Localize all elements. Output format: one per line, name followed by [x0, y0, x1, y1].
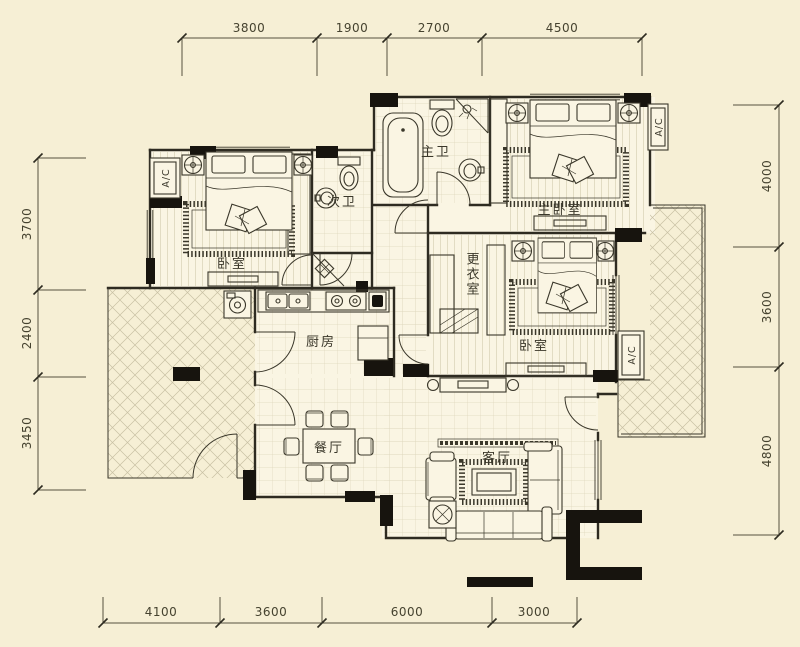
lamp-icon	[185, 157, 202, 174]
dim-left-2: 2400	[20, 317, 34, 350]
dim-left-1: 3700	[20, 208, 34, 241]
dimension-bottom: 4100 3600 6000 3000	[99, 597, 582, 628]
dim-right-3: 4800	[760, 435, 774, 468]
ac-label: A/C	[161, 168, 172, 187]
bathtub-icon	[383, 113, 423, 197]
dimension-top: 3800 1900 2700 4500	[178, 21, 647, 76]
room-label-bedroom1: 卧室	[217, 256, 247, 272]
dim-right-1: 4000	[760, 160, 774, 193]
sofa-3seat	[446, 507, 552, 541]
dim-left-3: 3450	[20, 417, 34, 450]
dresser-living	[428, 378, 519, 392]
dimension-right: 4000 3600 4800	[733, 101, 784, 540]
kitchen-appliance	[369, 292, 386, 310]
dim-bottom-4: 3000	[518, 605, 551, 619]
kitchen-sink-icon	[266, 292, 310, 310]
toilet-icon-master	[430, 100, 454, 136]
room-label-bedroom2: 卧室	[519, 338, 549, 354]
toilet-icon-bath2	[338, 157, 360, 190]
dimension-left: 3700 2400 3450	[20, 154, 86, 495]
room-label-dining: 餐厅	[314, 440, 344, 456]
lamp-icon	[295, 157, 312, 174]
room-label-dressing: 更衣室	[464, 252, 480, 297]
dim-bottom-1: 4100	[145, 605, 178, 619]
dim-top-3: 2700	[418, 21, 451, 35]
lamp-icon	[621, 105, 638, 122]
dim-right-2: 3600	[760, 291, 774, 324]
room-label-master-bedroom: 主卧室	[537, 202, 582, 218]
room-label-bath2: 次卫	[327, 194, 357, 210]
dim-top-4: 4500	[546, 21, 579, 35]
dim-top-1: 3800	[233, 21, 266, 35]
ac-unit-left: A/C	[150, 158, 180, 198]
floor-plan-page: 3800 1900 2700 4500 3700 2400 3450 4000 …	[0, 0, 800, 647]
ac-unit-top-right: A/C	[648, 104, 668, 150]
side-table-icon	[429, 501, 456, 528]
lamp-icon	[597, 243, 614, 260]
room-label-master-bath: 主卫	[421, 145, 451, 160]
floor-plan: 3800 1900 2700 4500 3700 2400 3450 4000 …	[0, 0, 800, 647]
dim-top-2: 1900	[336, 21, 369, 35]
ac-label: A/C	[654, 117, 665, 136]
ac-label: A/C	[627, 345, 638, 364]
lamp-icon	[515, 243, 532, 260]
fridge	[358, 326, 388, 360]
armchair	[426, 452, 456, 506]
dim-bottom-2: 3600	[255, 605, 288, 619]
washer-icon	[224, 291, 251, 318]
lamp-icon	[509, 105, 526, 122]
ac-unit-bedroom2: A/C	[618, 331, 644, 379]
stove-icon	[326, 292, 366, 310]
room-label-living: 客厅	[482, 450, 512, 466]
room-label-kitchen: 厨房	[306, 334, 336, 350]
dim-bottom-3: 6000	[391, 605, 424, 619]
